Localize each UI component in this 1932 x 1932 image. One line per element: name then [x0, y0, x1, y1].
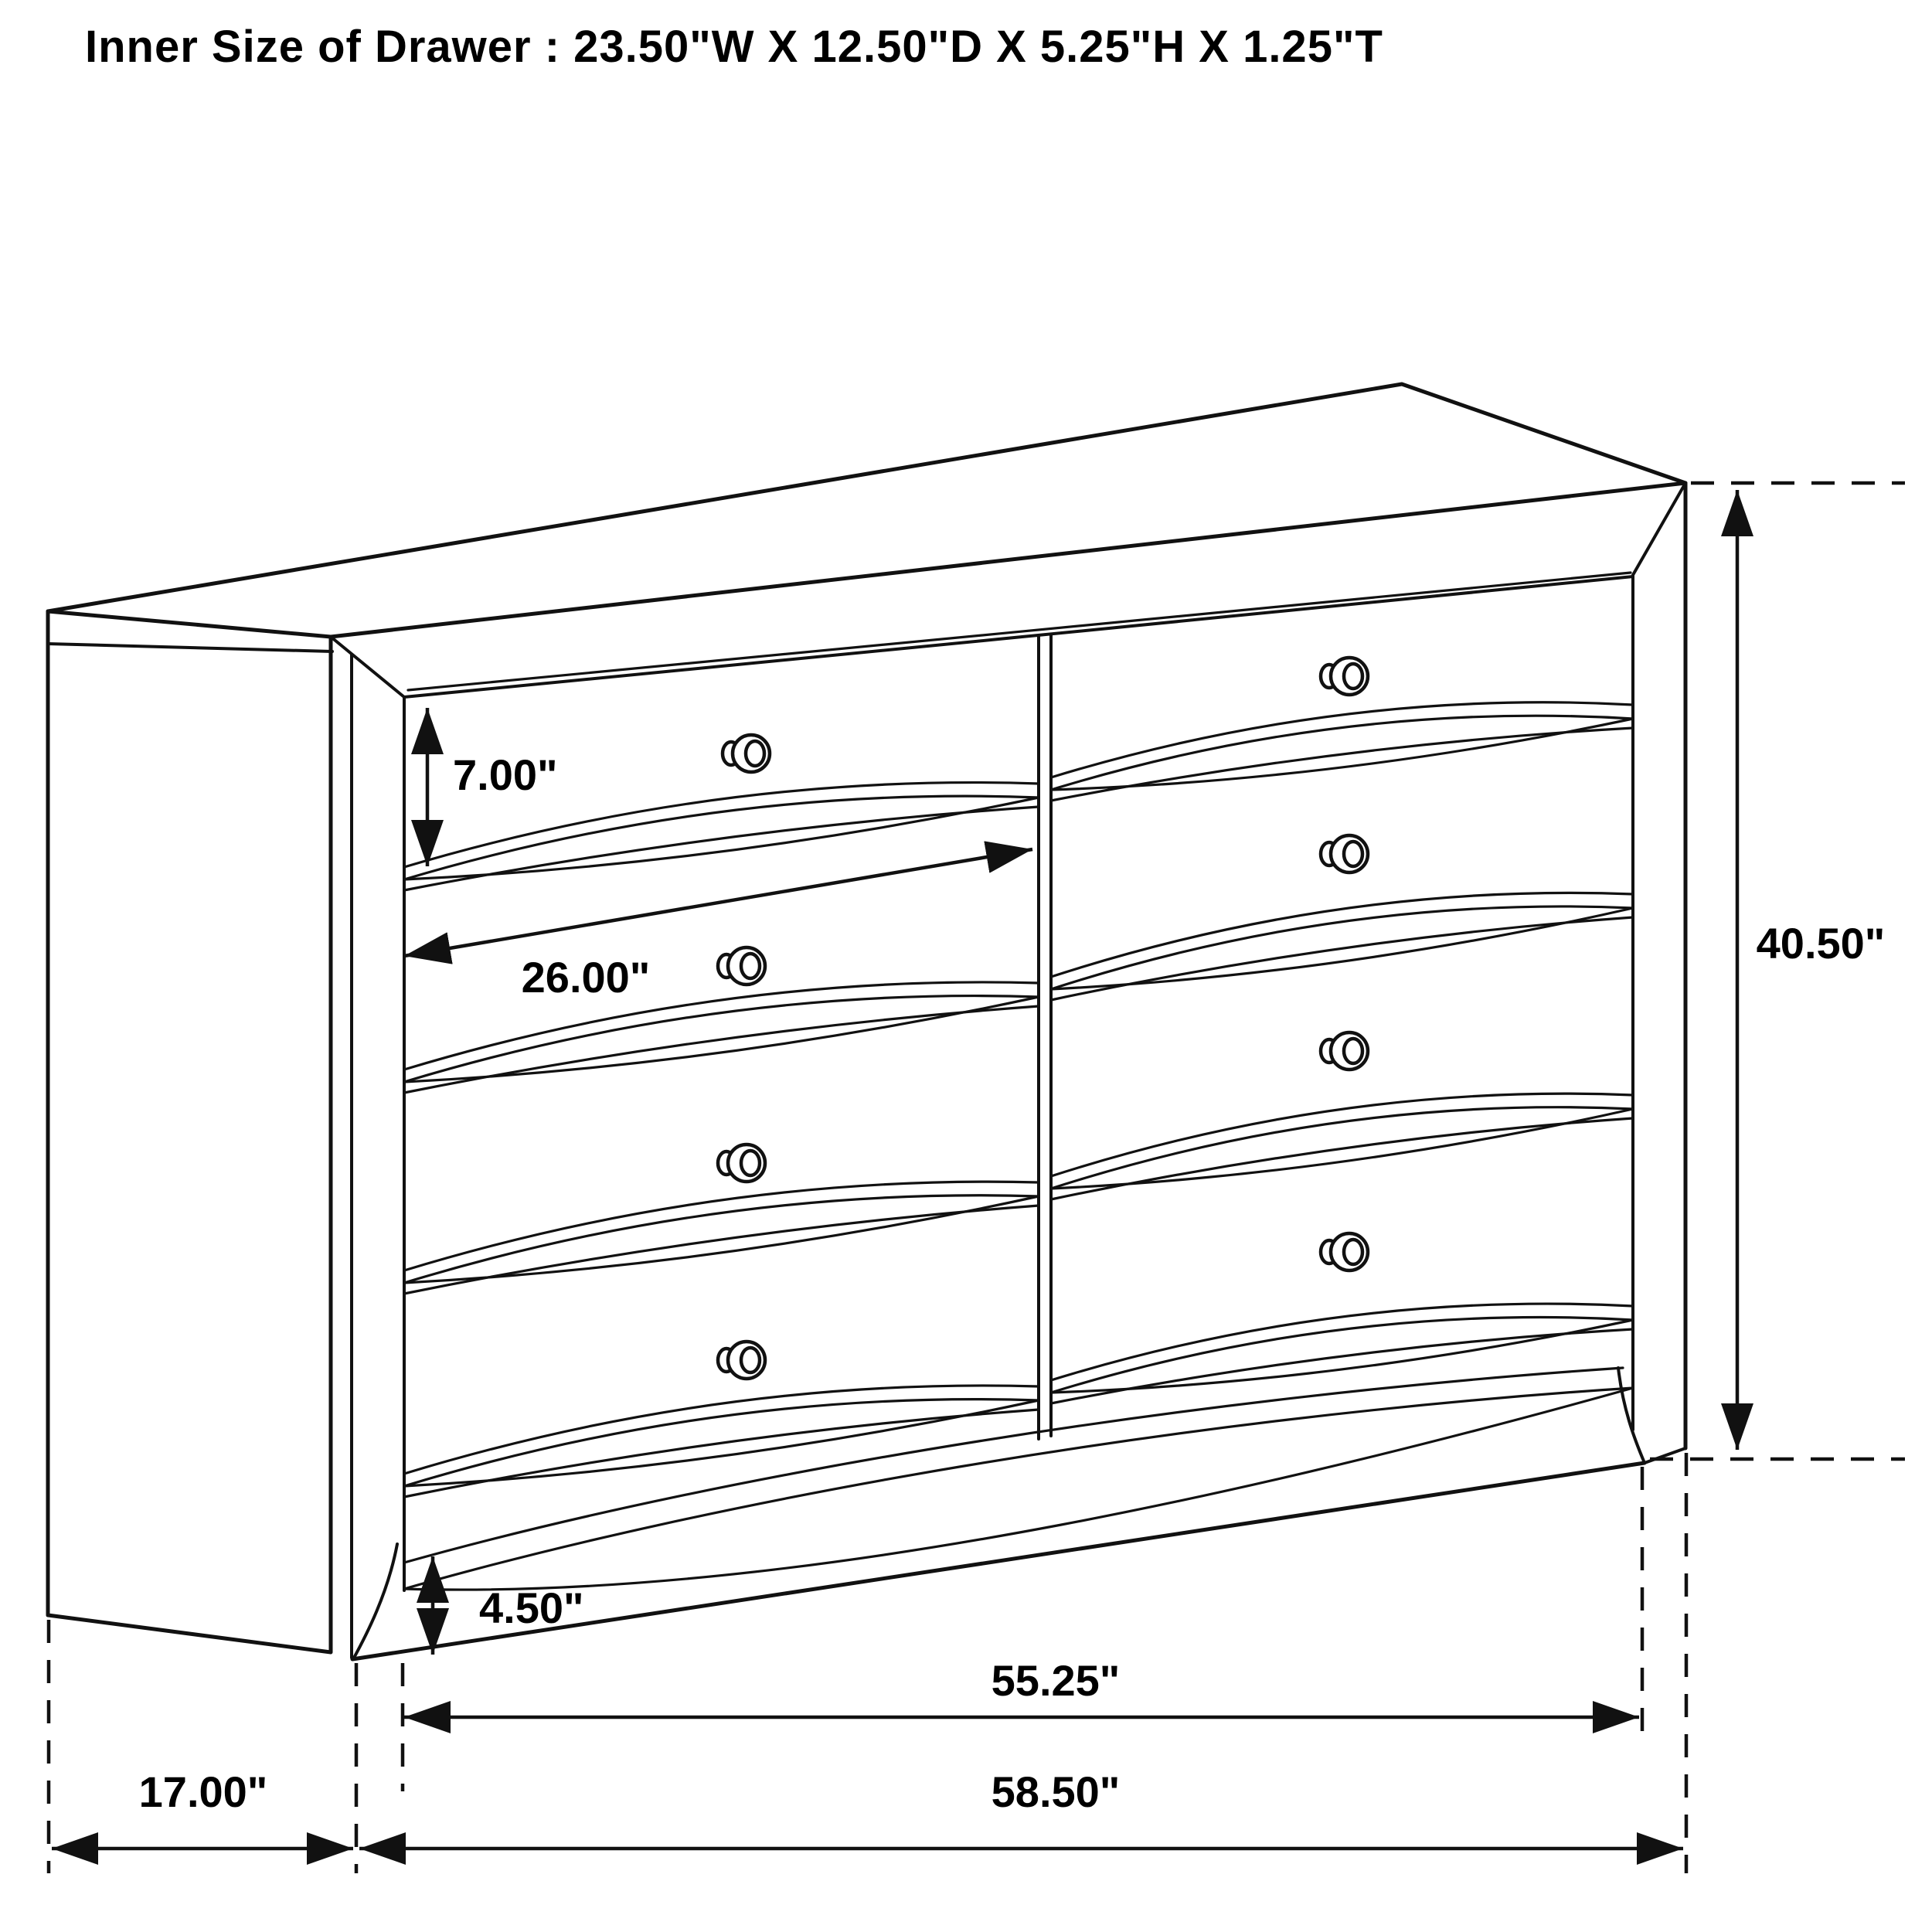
- overall-height-label: 40.50": [1757, 919, 1886, 968]
- overall-width-label: 58.50": [992, 1767, 1121, 1816]
- base-span-label: 55.25": [992, 1656, 1121, 1705]
- drawer-width-arrow: [404, 849, 1032, 956]
- knob: [1321, 1233, 1368, 1270]
- drawer-height-label: 7.00": [453, 750, 558, 799]
- diagram-title: Inner Size of Drawer : 23.50"W X 12.50"D…: [85, 22, 1383, 72]
- knob: [1321, 835, 1368, 872]
- knob: [718, 1342, 765, 1379]
- drawer-knobs: [718, 658, 1368, 1379]
- left-column-drawer-sculpts: [404, 783, 1039, 1497]
- dresser-dimension-drawing: Inner Size of Drawer : 23.50"W X 12.50"D…: [0, 0, 1932, 1932]
- knob: [718, 1145, 765, 1182]
- drawer-sculpt: [404, 1182, 1039, 1294]
- dresser-cabinet: [48, 384, 1685, 1659]
- drawer-sculpt: [1051, 893, 1633, 1000]
- side-panel: [48, 611, 404, 1658]
- dimension-annotations: [49, 483, 1905, 1873]
- right-frame-edge: [1633, 483, 1685, 1448]
- center-divider: [1039, 635, 1051, 1439]
- dimension-diagram: Inner Size of Drawer : 23.50"W X 12.50"D…: [0, 0, 1932, 1932]
- top-panel: [48, 384, 1685, 651]
- drawer-sculpt: [1051, 1094, 1633, 1199]
- drawer-sculpt: [404, 982, 1039, 1093]
- extension-lines: [49, 483, 1905, 1873]
- drawer-sculpt: [404, 1386, 1039, 1497]
- drawer-width-label: 26.00": [522, 953, 651, 1002]
- top-rail-edge: [404, 573, 1633, 697]
- drawer-sculpt: [1051, 702, 1633, 801]
- drawer-sculpt: [1051, 1304, 1633, 1403]
- knob: [718, 947, 765, 985]
- right-foot: [1618, 1368, 1685, 1463]
- knob: [723, 735, 770, 772]
- knob: [1321, 1032, 1368, 1070]
- foot-height-label: 4.50": [479, 1583, 584, 1632]
- knob: [1321, 658, 1368, 695]
- left-foot: [353, 1544, 397, 1659]
- side-depth-label: 17.00": [139, 1767, 268, 1816]
